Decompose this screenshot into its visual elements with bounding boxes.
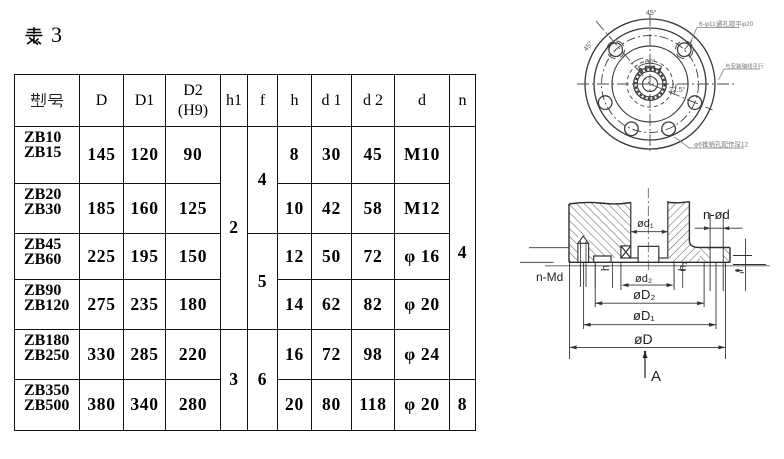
svg-text:与安装轴线平行: 与安装轴线平行 <box>725 62 764 70</box>
svg-text:A: A <box>651 368 661 385</box>
svg-text:ød₂: ød₂ <box>635 273 652 285</box>
svg-text:øD: øD <box>634 331 653 347</box>
svg-text:øD₂: øD₂ <box>633 287 655 302</box>
svg-text:h₁: h₁ <box>677 261 689 271</box>
svg-text:6-φ11通孔锪平φ20: 6-φ11通孔锪平φ20 <box>699 19 754 28</box>
svg-text:n-ød: n-ød <box>703 207 730 222</box>
svg-text:h: h <box>600 265 612 271</box>
svg-text:n-Md: n-Md <box>536 270 563 284</box>
svg-text:ød₁: ød₁ <box>637 218 654 230</box>
svg-text:45°: 45° <box>646 9 657 17</box>
svg-text:øD₁: øD₁ <box>633 308 655 323</box>
svg-text:φ6锥销孔配作深12: φ6锥销孔配作深12 <box>694 140 748 149</box>
svg-text:22.5°: 22.5° <box>669 86 686 94</box>
svg-text:45°: 45° <box>582 40 595 53</box>
svg-text:60°: 60° <box>645 58 656 66</box>
